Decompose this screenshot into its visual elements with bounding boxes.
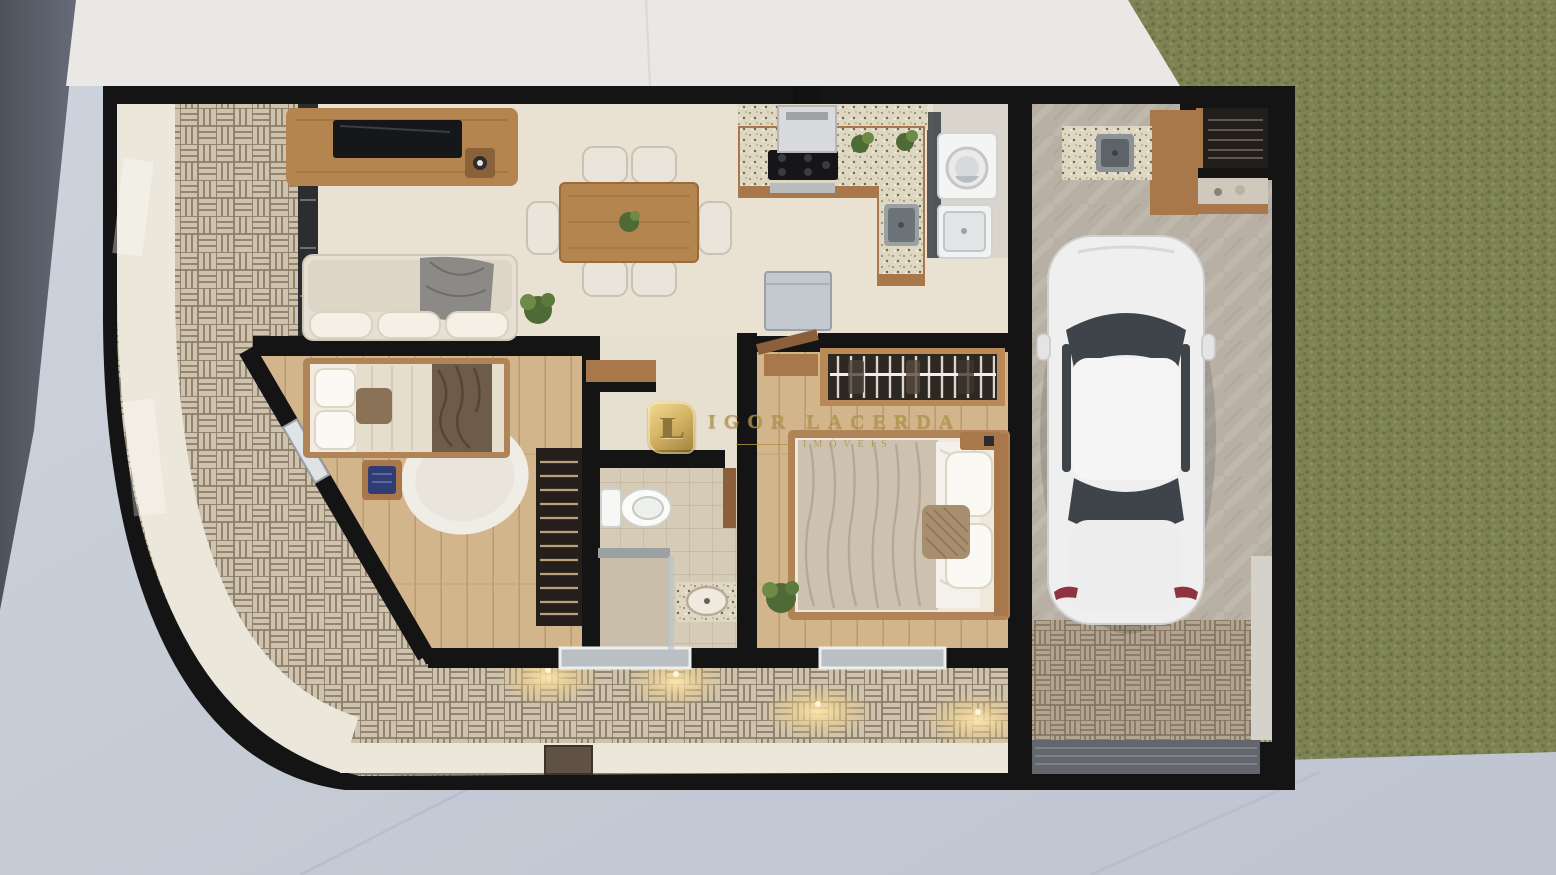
floor-plan-render: IL IGOR LACERDA IMÓVEIS	[0, 0, 1556, 875]
cooktop	[768, 150, 838, 180]
sofa-cushion	[378, 312, 440, 338]
bathroom-vanity	[676, 582, 737, 622]
wall-corridor-bedroom1	[582, 352, 600, 650]
wall-bottom-seg	[690, 648, 820, 668]
car-side-window	[1062, 344, 1071, 472]
bedroom2-nightstand	[960, 432, 1002, 450]
dining-chair	[699, 202, 731, 254]
bed1-pillow	[315, 411, 355, 449]
bedroom2-bed	[788, 430, 1010, 620]
garage-right-wall-face	[1251, 556, 1272, 740]
bedroom2-closet	[820, 348, 1005, 406]
bed2-duvet	[798, 440, 938, 610]
bed2-headboard	[994, 434, 1008, 616]
driveway-ramp	[1032, 740, 1260, 774]
dining-table	[560, 183, 698, 262]
shower-floor	[600, 556, 670, 650]
car-mirror	[1202, 334, 1215, 360]
wall-bathroom-top	[600, 450, 725, 468]
dining-chair	[527, 202, 559, 254]
bed1-pillow	[315, 369, 355, 407]
car	[1037, 236, 1216, 634]
car-roof	[1072, 358, 1180, 480]
driveway-pavers	[1032, 620, 1272, 742]
wall-hall-bedroom2-left	[737, 333, 757, 352]
bed1-accent-cushion	[356, 388, 392, 424]
wall-corridor-bedroom2	[737, 352, 757, 650]
car-mirror	[1037, 334, 1050, 360]
bedroom1-bed	[303, 358, 510, 458]
bedroom2-window	[820, 648, 945, 668]
floor-plan-canvas	[0, 0, 1556, 875]
gourmet-cabinet	[1150, 110, 1198, 215]
shower-glass	[668, 556, 674, 650]
car-side-window	[1181, 344, 1190, 472]
side-table-decor	[465, 148, 495, 178]
range-hood	[778, 106, 836, 152]
washing-machine	[938, 133, 997, 199]
bathroom-window	[560, 648, 690, 668]
wall-bottom-seg	[945, 648, 1008, 668]
shower-bench	[598, 548, 670, 558]
bedroom2	[756, 329, 1010, 620]
house	[103, 86, 1295, 790]
refrigerator	[765, 272, 831, 330]
gourmet-sink	[1096, 134, 1134, 172]
bedroom1-ottoman	[362, 460, 402, 500]
kitchen-sink	[884, 204, 919, 246]
dining-chair	[632, 147, 676, 183]
bathroom-door-leaf	[723, 468, 736, 528]
toilet	[601, 489, 671, 527]
dining-chair	[632, 260, 676, 296]
dining-chair	[583, 147, 627, 183]
sofa	[303, 255, 517, 340]
front-slab	[66, 0, 1183, 86]
bed1-throw	[432, 364, 492, 452]
corridor-floor	[600, 336, 737, 468]
sofa-cushion	[446, 312, 508, 338]
oven-front	[770, 183, 835, 193]
car-trunk	[1070, 520, 1182, 612]
bedroom2-bench	[764, 354, 818, 376]
bedroom1-wardrobe	[536, 448, 582, 626]
wall-bottom-seg	[428, 648, 560, 668]
sofa-throw-blanket	[420, 257, 494, 321]
wall-laundry-garage	[1008, 104, 1032, 790]
bed2-knit-cushion	[922, 505, 970, 559]
sofa-cushion	[310, 312, 372, 338]
laundry-tub	[938, 205, 992, 258]
side-counter	[1198, 178, 1268, 214]
dining-chair	[583, 260, 627, 296]
entry-step-mat	[545, 746, 592, 774]
